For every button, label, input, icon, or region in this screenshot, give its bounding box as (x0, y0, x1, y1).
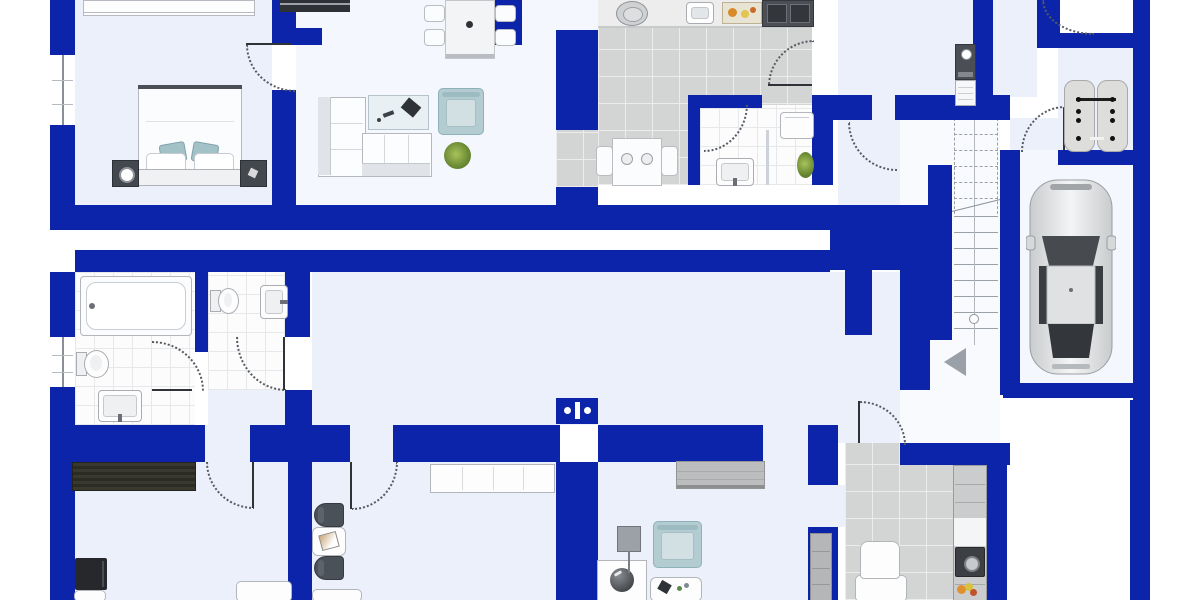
oven-door (964, 556, 980, 572)
desk-chair (860, 541, 900, 579)
stud (1110, 136, 1115, 141)
latch (1090, 137, 1104, 140)
food (728, 8, 737, 17)
plate (621, 153, 633, 165)
sofa-back (318, 97, 331, 175)
hall-top-c-floor (993, 35, 1037, 97)
kitchen2-cabinets (953, 465, 987, 600)
food (750, 7, 756, 13)
wall (928, 165, 952, 340)
tall-cabinet (810, 533, 832, 600)
cabinet-cut-2 (312, 589, 362, 600)
headboard-line (138, 85, 242, 89)
wall (50, 425, 205, 462)
basin (691, 7, 709, 19)
plate (641, 153, 653, 165)
wall (808, 425, 838, 485)
floor-lamp (617, 526, 641, 552)
car-icon (1026, 178, 1116, 376)
open-shelf (954, 518, 986, 546)
burner (767, 4, 787, 23)
armchair-2 (653, 521, 702, 568)
stair-tread (954, 312, 998, 313)
storage-pads (1064, 80, 1128, 150)
piece (677, 586, 682, 591)
kitchen-pass-floor (556, 130, 598, 187)
wall (1133, 0, 1150, 403)
wall (50, 387, 75, 600)
burner (790, 4, 810, 23)
dining-chair-4 (495, 29, 516, 46)
wall (973, 0, 993, 110)
activity-table (650, 577, 702, 600)
water-heater (955, 44, 976, 80)
food (741, 10, 749, 18)
tub-basin (86, 282, 186, 330)
hall-lower-floor (312, 272, 900, 425)
stairs-arrow (944, 348, 966, 376)
floor-plan (0, 0, 1200, 600)
desk-globe (597, 560, 647, 600)
stair-tread (954, 150, 998, 151)
stair-tread (954, 182, 998, 183)
panel-dot (564, 407, 571, 414)
wall (845, 270, 872, 335)
stove (762, 0, 814, 27)
double-bed (138, 85, 242, 186)
wall (1058, 150, 1135, 165)
window-glass-line (62, 55, 64, 125)
wall (393, 425, 560, 462)
footboard (136, 169, 244, 186)
bath-top-sink (716, 158, 754, 186)
panel-dot (584, 407, 591, 414)
wall (1000, 150, 1020, 395)
wall (900, 270, 930, 390)
door-storage (1021, 106, 1065, 152)
side-chair-2 (314, 556, 344, 580)
wall (1130, 400, 1150, 600)
wall (50, 0, 75, 55)
stair-tread (954, 296, 998, 297)
dining-chair-1 (424, 5, 445, 22)
lamp-stem (628, 551, 630, 573)
door-leaf (246, 43, 292, 45)
kitchen-chair-1 (596, 146, 613, 176)
rug (72, 462, 196, 491)
stud (1110, 118, 1115, 123)
wall (50, 205, 855, 230)
dining-chair-3 (495, 5, 516, 22)
nightstand-left (112, 160, 139, 187)
stud (1110, 97, 1115, 102)
stair-tread (954, 134, 998, 135)
stair-tread (954, 264, 998, 265)
toilet-1 (76, 349, 108, 377)
remote (383, 110, 395, 118)
stud (1076, 118, 1081, 123)
panel-switch (575, 402, 580, 419)
faucet (118, 414, 122, 422)
stud (1076, 109, 1081, 114)
stair-tread (954, 248, 998, 249)
door-leaf (152, 389, 192, 391)
laptop (401, 97, 422, 117)
faucet (280, 300, 288, 304)
wall (556, 187, 598, 205)
wall (598, 425, 763, 462)
window-glass-line (62, 337, 64, 387)
garage-entry-floor (1018, 150, 1058, 165)
stair-center-line (974, 118, 975, 345)
wall (50, 125, 75, 205)
bath-top-plant (797, 152, 814, 178)
wall (688, 108, 700, 185)
wall (296, 28, 322, 45)
faucet (733, 178, 737, 186)
seat (661, 532, 694, 560)
armchair (438, 88, 484, 135)
stair-tread (954, 216, 998, 217)
plant (444, 142, 471, 169)
wall (1037, 33, 1135, 48)
piece (684, 583, 689, 588)
dining-table (445, 0, 495, 59)
door-leaf (252, 462, 254, 508)
band-gap-2-floor (350, 425, 393, 462)
table-knob (466, 21, 473, 28)
fruit-bowl (957, 583, 977, 597)
dial (961, 49, 972, 60)
wardrobe (83, 0, 255, 16)
wall (556, 30, 598, 130)
stud (1076, 97, 1081, 102)
hall-shelf (430, 464, 555, 493)
pot (616, 1, 648, 26)
wall (195, 272, 208, 352)
wall (272, 90, 296, 205)
door-leaf (350, 462, 352, 509)
sideboard (676, 461, 765, 489)
pad (1097, 80, 1128, 152)
kitchen-table (612, 138, 662, 186)
wall (50, 272, 75, 337)
radiator (955, 80, 976, 106)
stud (1110, 109, 1115, 114)
stair-tread (954, 328, 998, 329)
wall (812, 120, 833, 185)
wall (75, 250, 830, 272)
cabinet-cut-1 (236, 581, 292, 600)
bath-sink (98, 390, 142, 422)
stair-post (969, 314, 979, 324)
corridor-strip-floor (75, 230, 830, 250)
wall (288, 462, 312, 600)
side-table (312, 527, 346, 556)
dining-chair-2 (424, 29, 445, 46)
coffee-table (368, 95, 429, 130)
band-gap-1-floor (205, 425, 250, 462)
hall-top-b-floor (993, 0, 1037, 35)
wall (812, 95, 872, 120)
wall (1003, 383, 1143, 398)
pad (1064, 80, 1095, 152)
stair-tread (954, 232, 998, 233)
toilet-2 (210, 287, 238, 313)
tv (75, 558, 107, 590)
remote (377, 118, 381, 122)
window-bedroom (50, 55, 75, 125)
kitchen-chair-2 (661, 146, 678, 176)
living-kitchen-top-floor (556, 0, 598, 30)
seat (446, 99, 476, 127)
stair-tread (954, 280, 998, 281)
game-box (657, 580, 672, 594)
piano (280, 0, 350, 12)
decor (248, 168, 259, 179)
stair-tread (954, 198, 998, 199)
wall (285, 390, 312, 425)
stair-tread (954, 166, 998, 167)
wall (985, 443, 1007, 600)
cutting-board (722, 2, 762, 24)
sofa-back (362, 163, 430, 176)
faucet (89, 303, 95, 309)
bath-divider (766, 130, 769, 185)
wc-sink (260, 285, 288, 319)
stud (1076, 136, 1081, 141)
wc-lower-floor (208, 390, 285, 425)
door-leaf (858, 401, 860, 443)
door-leaf (283, 337, 285, 390)
built-in-oven (955, 547, 985, 577)
photo (318, 531, 340, 551)
lamp (119, 167, 135, 183)
wall (285, 272, 310, 337)
side-chair-1 (314, 503, 344, 527)
bathtub (80, 276, 192, 336)
wall (556, 462, 598, 600)
wall (250, 425, 350, 462)
nightstand-right (240, 160, 267, 187)
washing-machine (780, 112, 814, 139)
door-gap-mid-floor (808, 485, 845, 527)
fruit (970, 589, 977, 596)
band-gap-3-floor (763, 425, 808, 462)
kitchen-sink (686, 2, 714, 24)
tv-stand (74, 590, 106, 600)
window-bathroom (50, 337, 75, 387)
wall-panel (556, 398, 598, 424)
door-leaf (768, 84, 812, 86)
car (1026, 178, 1116, 376)
